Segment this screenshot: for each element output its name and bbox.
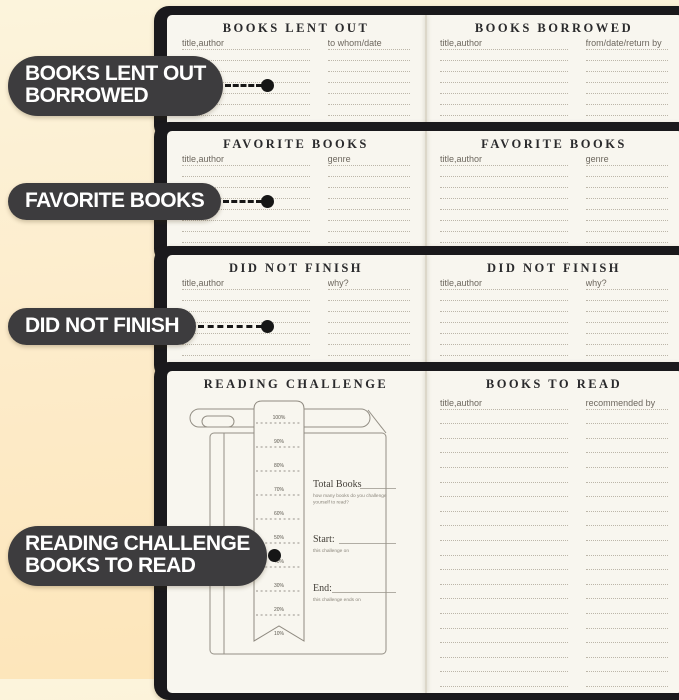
column-header-title-author: title,author [440,398,568,410]
ruled-row [182,166,410,177]
book-roll-detail [202,416,234,427]
ruled-line [586,686,668,687]
callout-pointer-dot [261,79,274,92]
ruled-line [440,511,568,512]
callout-label-line: DID NOT FINISH [25,315,179,337]
ruled-row [440,290,668,301]
ruled-line [440,187,568,188]
ruled-line [586,511,668,512]
ruled-row [440,410,668,425]
column-header-right: from/date/return by [586,38,668,50]
ruled-row [440,439,668,454]
ruled-columns: title,authorrecommended by [440,395,668,687]
ruled-row [440,643,668,658]
ruled-columns: title,authorgenre [440,155,668,243]
challenge-field-label: Start: [313,534,335,545]
ruled-line [586,93,668,94]
ruled-line [586,231,668,232]
ruled-row [440,468,668,483]
ruled-row [440,323,668,334]
ruled-row [440,50,668,61]
ruled-line [328,311,410,312]
callout-label-line: BOOKS TO READ [25,555,250,577]
ruled-line [586,176,668,177]
ruled-line [440,642,568,643]
book-corner-line [368,410,386,433]
callout-challenge-books-to-read: READING CHALLENGE BOOKS TO READ [8,526,274,586]
ruled-line [440,628,568,629]
ruled-line [440,300,568,301]
ruled-line [440,82,568,83]
callout-label-line: BORROWED [25,85,206,107]
ruled-line [440,555,568,556]
ruled-row [440,166,668,177]
ruled-columns: title,authorwhy? [440,279,668,367]
ruled-line [586,220,668,221]
column-header-title-author: title,author [182,278,310,290]
ruled-row [440,312,668,323]
page-books-borrowed: BOOKS BORROWED title,authorfrom/date/ret… [425,15,679,133]
callout-dashed-connector [223,200,262,203]
ruled-line [586,438,668,439]
ruled-line [586,569,668,570]
column-header-title-author: title,author [182,154,310,166]
ruled-line [440,598,568,599]
ribbon-percent-label: 80% [274,463,285,469]
ruled-line [182,300,310,301]
ruled-line [328,355,410,356]
challenge-field-label: End: [313,583,332,594]
ruled-row: title,authorwhy? [440,279,668,290]
callout-dashed-connector [198,325,262,328]
ruled-line [440,569,568,570]
callout-pill: READING CHALLENGE BOOKS TO READ [8,526,267,586]
ruled-row [440,556,668,571]
ruled-row [182,232,410,243]
column-header-right: to whom/date [328,38,410,50]
ruled-line [440,104,568,105]
ribbon-percent-label: 10% [274,631,285,637]
ruled-line [586,322,668,323]
page-books-to-read: BOOKS TO READ title,authorrecommended by [425,371,679,693]
ruled-row: title,authorrecommended by [440,395,668,410]
ruled-line [440,438,568,439]
ruled-line [586,355,668,356]
ruled-row: title,authorgenre [440,155,668,166]
ruled-line [182,231,310,232]
page-title: BOOKS BORROWED [440,21,668,36]
ruled-line [440,525,568,526]
ruled-line [440,333,568,334]
ruled-line [440,423,568,424]
ruled-line [440,115,568,116]
ruled-line [440,613,568,614]
ruled-line [328,176,410,177]
ruled-line [586,671,668,672]
ruled-line [586,209,668,210]
ruled-row [440,629,668,644]
page-did-not-finish-right: DID NOT FINISH title,authorwhy? [425,255,679,373]
page-title: BOOKS LENT OUT [182,21,410,36]
ruled-row [440,221,668,232]
ruled-line [586,598,668,599]
ruled-line [586,423,668,424]
column-header-title-author: title,author [440,278,568,290]
ruled-line [440,496,568,497]
page-title: FAVORITE BOOKS [440,137,668,152]
ruled-line [586,496,668,497]
ruled-row [440,232,668,243]
ruled-row [440,497,668,512]
ruled-row [440,658,668,673]
ruled-line [586,311,668,312]
ruled-line [440,344,568,345]
ruled-line [328,71,410,72]
ruled-line [440,198,568,199]
callout-pointer-dot [261,195,274,208]
ruled-row: title,authorto whom/date [182,39,410,50]
ruled-line [586,344,668,345]
column-header-right: genre [328,154,410,166]
ribbon-percent-label: 90% [274,439,285,445]
ruled-line [440,482,568,483]
ruled-line [586,555,668,556]
ruled-line [440,452,568,453]
ribbon-percent-label: 70% [274,487,285,493]
column-header-right: why? [328,278,410,290]
ruled-line [440,467,568,468]
callout-pointer-dot [261,320,274,333]
ruled-line [328,82,410,83]
ruled-line [586,187,668,188]
ruled-line [328,322,410,323]
ruled-row [440,483,668,498]
column-header-title-author: title,author [440,38,568,50]
ruled-line [328,60,410,61]
ruled-line [586,467,668,468]
ruled-row [182,221,410,232]
ruled-line [586,657,668,658]
page-title: FAVORITE BOOKS [182,137,410,152]
ruled-line [182,176,310,177]
ruled-line [586,525,668,526]
callout-did-not-finish: DID NOT FINISH [8,308,274,345]
ruled-line [586,115,668,116]
ruled-line [440,242,568,243]
column-header-title-author: title,author [440,154,568,166]
ribbon-percent-label: 30% [274,583,285,589]
ruled-row [440,526,668,541]
ruled-row [440,541,668,556]
ruled-line [586,613,668,614]
callout-pill: BOOKS LENT OUT BORROWED [8,56,223,116]
ruled-line [328,209,410,210]
ruled-row [440,177,668,188]
ruled-line [440,231,568,232]
ruled-line [328,344,410,345]
ruled-line [586,198,668,199]
page-title: READING CHALLENGE [182,377,410,392]
callout-label-line: BOOKS LENT OUT [25,63,206,85]
ruled-row [440,614,668,629]
ruled-line [440,322,568,323]
ruled-line [440,209,568,210]
challenge-field-note: this challenge on [313,548,349,554]
ruled-line [586,60,668,61]
ruled-row [440,570,668,585]
column-header-right: recommended by [586,398,668,410]
callout-label-line: READING CHALLENGE [25,533,250,555]
ruled-line [586,242,668,243]
page-title: BOOKS TO READ [440,377,668,392]
ruled-line [328,104,410,105]
ruled-row [440,199,668,210]
bookmark-ribbon [254,401,304,641]
page-title: DID NOT FINISH [440,261,668,276]
challenge-field-note: this challenge ends on [313,597,361,603]
ruled-row [440,301,668,312]
ruled-line [440,686,568,687]
ruled-line [586,82,668,83]
ruled-line [440,584,568,585]
ruled-line [440,355,568,356]
ruled-line [440,176,568,177]
ruled-row [440,61,668,72]
ruled-row [440,512,668,527]
ruled-row: title,authorgenre [182,155,410,166]
ruled-row [440,72,668,83]
ruled-line [586,104,668,105]
ruled-line [586,333,668,334]
ruled-line [586,71,668,72]
ruled-line [586,584,668,585]
ribbon-percent-label: 20% [274,607,285,613]
ruled-line [586,452,668,453]
ruled-line [586,642,668,643]
ruled-line [440,540,568,541]
ruled-line [328,187,410,188]
page-title: DID NOT FINISH [182,261,410,276]
column-header-right: genre [586,154,668,166]
ruled-line [440,657,568,658]
ruled-line [586,300,668,301]
ruled-line [586,540,668,541]
ruled-line [328,93,410,94]
ribbon-percent-label: 100% [273,415,286,421]
ruled-line [328,231,410,232]
ruled-line [182,355,310,356]
challenge-fields: Total Bookshow many books do you challen… [313,479,396,603]
ruled-line [182,242,310,243]
callout-pill: FAVORITE BOOKS [8,183,221,220]
callout-label-line: FAVORITE BOOKS [25,190,204,212]
ruled-line [440,671,568,672]
ruled-line [440,93,568,94]
challenge-field-note: yourself to read? [313,500,349,506]
ruled-row: title,authorwhy? [182,279,410,290]
ruled-row [440,105,668,116]
callout-dashed-connector [225,84,262,87]
ruled-row [440,424,668,439]
ruled-row [440,94,668,105]
challenge-field-note: how many books do you challenge [313,493,387,499]
ruled-line [328,198,410,199]
ruled-line [440,71,568,72]
ruled-row [440,345,668,356]
ruled-row [440,599,668,614]
ruled-line [440,220,568,221]
ruled-line [328,220,410,221]
ribbon-percent-label: 60% [274,511,285,517]
ruled-line [328,333,410,334]
callout-favorite-books: FAVORITE BOOKS [8,183,274,220]
ruled-row [440,188,668,199]
ruled-line [586,628,668,629]
ruled-line [440,311,568,312]
challenge-field-label: Total Books [313,479,362,490]
ruled-line [328,300,410,301]
ruled-row [440,210,668,221]
ruled-line [328,115,410,116]
ruled-row [440,453,668,468]
ruled-line [328,242,410,243]
ribbon-percent-label: 50% [274,535,285,541]
callout-books-lent-out-borrowed: BOOKS LENT OUT BORROWED [8,56,274,116]
ruled-line [440,60,568,61]
ruled-columns: title,authorfrom/date/return by [440,39,668,116]
ruled-row [440,585,668,600]
ruled-row [440,672,668,687]
ruled-row [440,83,668,94]
page-favorite-books-right: FAVORITE BOOKS title,authorgenre [425,131,679,257]
ruled-row [440,334,668,345]
ruled-row: title,authorfrom/date/return by [440,39,668,50]
ruled-line [586,482,668,483]
callout-pill: DID NOT FINISH [8,308,196,345]
ruled-row [182,345,410,356]
column-header-right: why? [586,278,668,290]
ruled-row [182,290,410,301]
column-header-title-author: title,author [182,38,310,50]
